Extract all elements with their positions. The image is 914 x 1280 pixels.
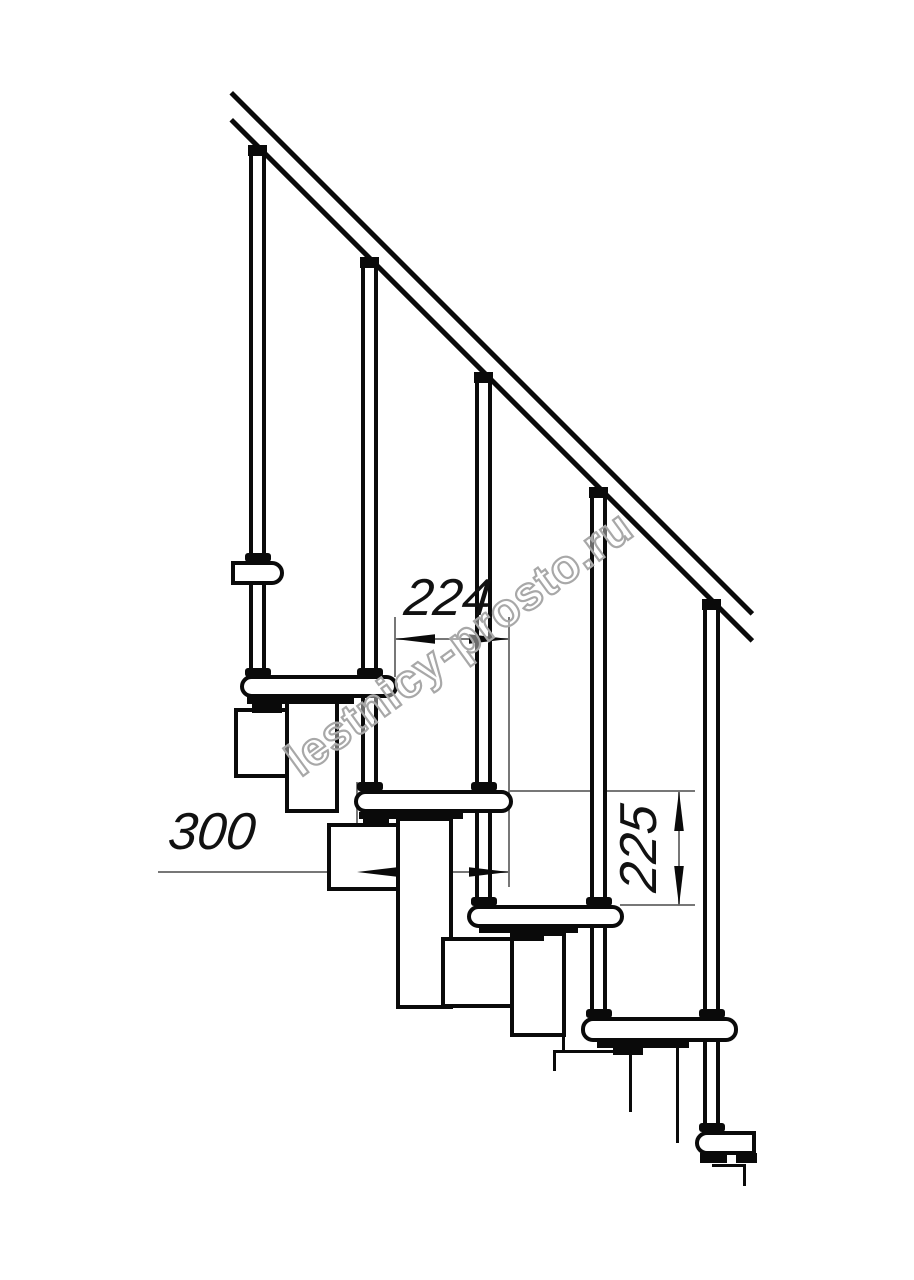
- baluster-5-collar-upper: [699, 1009, 725, 1018]
- ext-line-224-right: [508, 617, 510, 887]
- tread-2: [354, 790, 513, 813]
- fragment-step-v3: [562, 1035, 565, 1052]
- tread-3: [467, 905, 624, 928]
- baluster-3-collar-lower: [471, 897, 497, 906]
- dim-225-arrow-down: [673, 866, 685, 906]
- tread-2-pad: [359, 812, 463, 819]
- tread-4: [581, 1017, 738, 1042]
- dim-label-225: 225: [614, 789, 664, 906]
- baluster-5: [703, 600, 720, 1133]
- tread-0-end: [231, 561, 284, 585]
- baluster-1-rail-cap: [248, 145, 267, 156]
- spine-module-6: [510, 932, 566, 1037]
- fragment-step-v1: [553, 1050, 556, 1071]
- fragment-line-1: [629, 1050, 632, 1112]
- baluster-3-collar-upper: [471, 782, 497, 791]
- dim-225-arrow-up: [673, 791, 685, 831]
- tread-5-start: [695, 1131, 756, 1155]
- tread-1-tab: [252, 704, 282, 713]
- tread-5-pad-left: [700, 1153, 727, 1163]
- baluster-4-collar-lower: [586, 1009, 612, 1018]
- staircase-drawing: 224 300 225 lestnicy-prosto.ru: [0, 0, 914, 1280]
- baluster-5-collar-lower: [699, 1123, 725, 1132]
- dim-label-300: 300: [159, 806, 264, 858]
- tread-5-pad-right: [736, 1153, 757, 1163]
- baluster-3-rail-cap: [474, 372, 493, 383]
- fragment-line-2: [676, 1045, 679, 1143]
- baluster-2-rail-cap: [360, 257, 379, 268]
- baluster-1: [249, 146, 266, 677]
- baluster-5-rail-cap: [702, 599, 721, 610]
- spine-module-3: [327, 823, 404, 891]
- watermark-text: lestnicy-prosto.ru: [243, 474, 676, 812]
- baluster-1-collar-lower: [245, 668, 271, 677]
- baluster-4-collar-upper: [586, 897, 612, 906]
- fragment-floor-h: [712, 1164, 746, 1167]
- baluster-4-rail-cap: [589, 487, 608, 498]
- tread-2-tab: [363, 819, 389, 826]
- baluster-1-collar-upper: [245, 553, 271, 562]
- baluster-2-collar-lower: [357, 782, 383, 791]
- fragment-floor-v: [743, 1164, 746, 1186]
- spine-module-5: [441, 937, 519, 1008]
- tread-3-tab: [513, 933, 544, 941]
- fragment-step-v2: [614, 1041, 617, 1053]
